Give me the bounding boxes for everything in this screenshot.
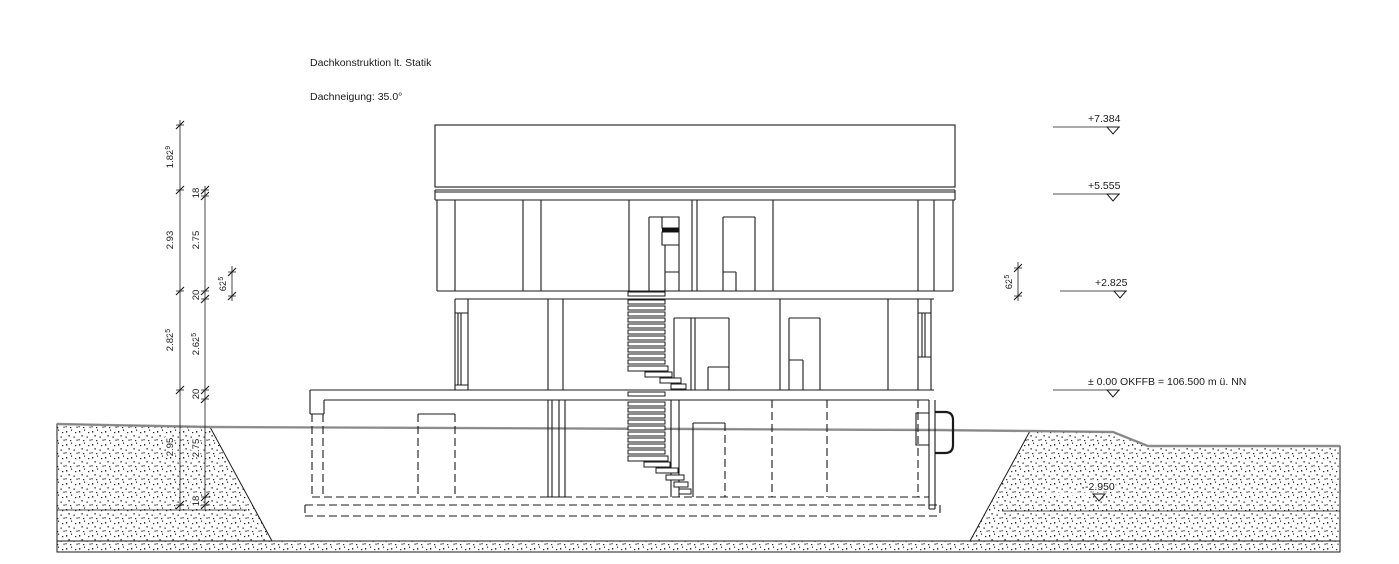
basement-solid-walls [418,400,935,509]
dim-inner-0: 18 [191,188,202,199]
ground-hatch-bottom-strip [57,541,1340,552]
level-marker-zero: ± 0.00 OKFFB = 106.500 m ü. NN [1053,376,1246,397]
dim-outer-3: 2.95 [165,438,176,457]
level-label-eaves: +5.555 [1088,180,1121,192]
dim-parapet-left: 625 [218,266,236,301]
dim-inner-5: 2.75 [191,439,202,458]
dim-inner-3: 2.625 [191,333,202,356]
ground-storey-window-left [455,313,468,385]
ground-hatch-right [970,431,1340,541]
drawing-sheet: Dachkonstruktion lt. Statik Dachneigung:… [0,0,1399,564]
svg-text:625: 625 [1004,275,1015,290]
level-label-basement: -2.950 [1085,481,1115,493]
eaves-band [435,190,955,200]
upper-door-2 [723,217,755,291]
dim-outer-2: 2.825 [165,329,176,352]
level-marker-eaves: +5.555 [1053,180,1121,201]
level-marker-upper-floor: +2.825 [1060,277,1128,298]
upper-storey-walls [437,200,953,299]
level-marker-ridge: +7.384 [1053,113,1121,134]
dim-outer-1: 2.93 [165,231,176,250]
ground-door-2 [789,318,820,390]
building-section [305,125,955,516]
building-section-drawing: Dachkonstruktion lt. Statik Dachneigung:… [0,0,1399,564]
roof-box [435,125,955,187]
ground-floor-slab [310,390,934,414]
dim-inner-6: 18 [191,496,202,507]
svg-text:625: 625 [218,277,229,292]
ground-door-1 [674,318,729,390]
ground-hatch [57,424,1340,552]
level-label-zero: ± 0.00 OKFFB = 106.500 m ü. NN [1088,376,1246,388]
terrain-line [57,424,1340,446]
roof-note: Dachkonstruktion lt. Statik [310,57,432,69]
upper-door-1-lintel [662,228,679,232]
basement-dashed-walls [305,400,940,516]
dim-inner-2: 20 [191,290,202,301]
ground-storey-walls [455,299,931,390]
dim-inner-4: 20 [191,389,202,400]
drain-elbow [935,412,953,453]
staircase [628,292,691,494]
level-label-ridge: +7.384 [1088,113,1121,125]
level-label-upper-floor: +2.825 [1095,277,1128,289]
pitch-note: Dachneigung: 35.0° [310,91,402,103]
dim-parapet-right: 625 [1004,262,1022,301]
dim-inner-1: 2.75 [191,231,202,250]
dim-outer-0: 1.829 [165,146,176,169]
ground-storey-window-right [918,313,931,357]
